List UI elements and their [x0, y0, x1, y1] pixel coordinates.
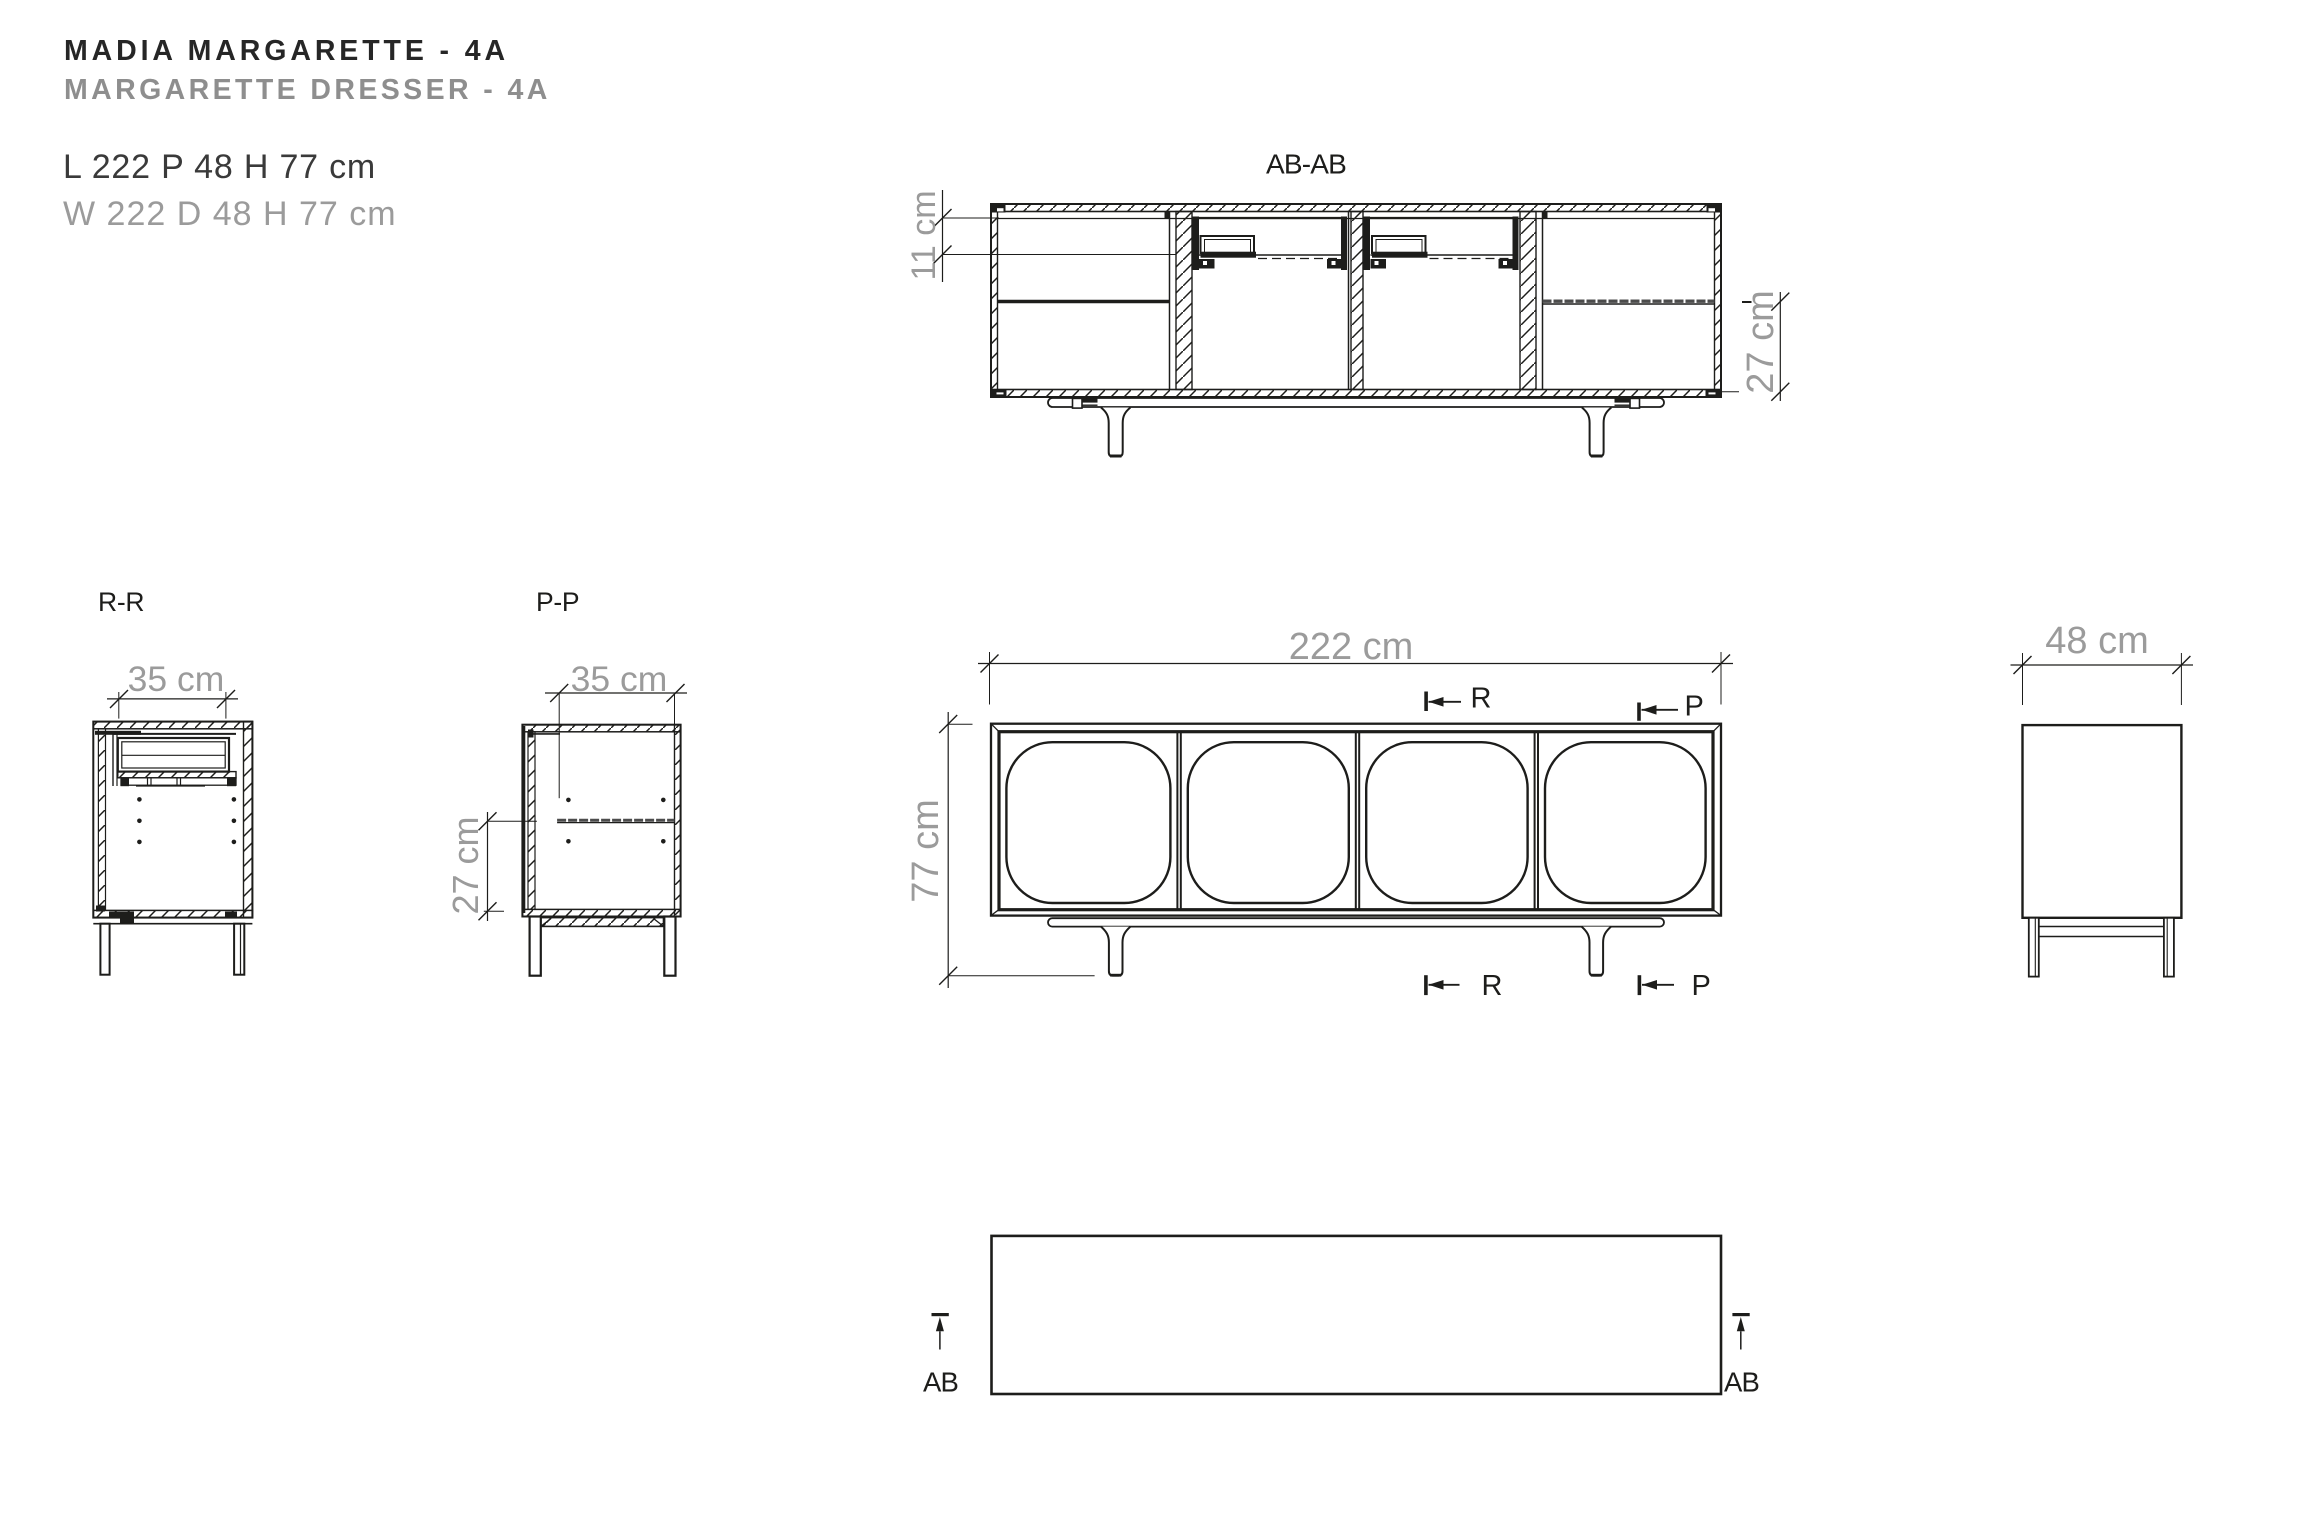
svg-text:27 cm: 27 cm	[1740, 290, 1782, 393]
svg-text:222 cm: 222 cm	[1289, 626, 1414, 668]
svg-text:R: R	[1482, 970, 1503, 1002]
svg-text:AB-AB: AB-AB	[1266, 149, 1346, 180]
svg-text:P: P	[1685, 691, 1704, 723]
svg-text:11 cm: 11 cm	[905, 190, 943, 280]
svg-text:MADIA MARGARETTE - 4A: MADIA MARGARETTE - 4A	[64, 35, 509, 67]
svg-text:MARGARETTE DRESSER - 4A: MARGARETTE DRESSER - 4A	[64, 74, 551, 106]
svg-text:P-P: P-P	[536, 587, 579, 617]
svg-text:W 222 D 48 H 77 cm: W 222 D 48 H 77 cm	[63, 195, 397, 233]
svg-text:R: R	[1471, 683, 1492, 715]
svg-text:P: P	[1692, 970, 1711, 1002]
svg-text:35 cm: 35 cm	[128, 659, 225, 699]
svg-text:L 222 P 48 H 77 cm: L 222 P 48 H 77 cm	[63, 148, 376, 186]
svg-text:77 cm: 77 cm	[905, 799, 947, 902]
svg-text:R-R: R-R	[98, 587, 144, 617]
svg-text:AB: AB	[1724, 1367, 1759, 1398]
svg-text:AB: AB	[923, 1367, 958, 1398]
svg-text:27 cm: 27 cm	[445, 816, 486, 914]
svg-text:48 cm: 48 cm	[2045, 620, 2148, 662]
